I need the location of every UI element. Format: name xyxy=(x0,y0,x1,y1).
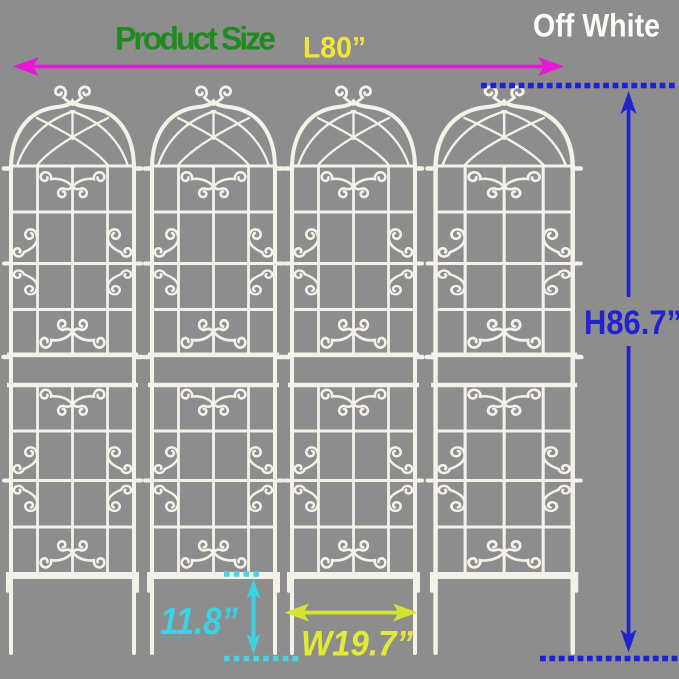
svg-text:11.8”: 11.8” xyxy=(160,601,238,643)
svg-text:Off White: Off White xyxy=(533,8,660,44)
svg-text:W19.7”: W19.7” xyxy=(301,625,413,664)
svg-text:L80”: L80” xyxy=(303,32,366,65)
svg-text:H86.7”: H86.7” xyxy=(584,304,679,342)
svg-text:Product Size: Product Size xyxy=(115,21,276,57)
